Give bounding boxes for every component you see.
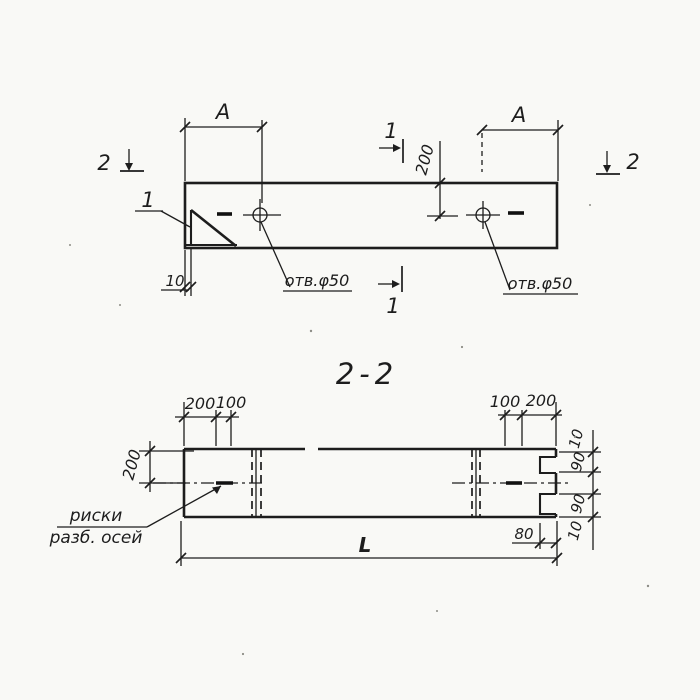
speck [436,610,438,612]
section-1-bottom-label: 1 [386,294,399,318]
dim-tr-100: 100 [490,392,521,411]
dim-a-right: A [477,103,563,181]
dim-height-left: 200 [119,441,194,492]
speck [69,244,71,246]
speck [574,436,576,438]
dim-right-side: 10 90 90 10 [559,427,601,550]
panel-outline [185,183,557,248]
dim-r-10-bottom: 10 [564,519,586,542]
dim-top-right: 100 200 [490,391,562,446]
speck [589,204,591,206]
dim-r-10-top: 10 [565,427,587,450]
groove-top-outline [540,457,556,473]
axes-note-line1: риски [69,506,123,526]
groove-bottom-outline [540,494,556,514]
speck [461,346,463,348]
dim-a-left: A [180,100,267,203]
section-arrow-head [125,163,133,171]
dim-200-label: 200 [412,142,438,176]
dim-tr-200: 200 [526,391,557,410]
section-mark-1-top: 1 [379,119,403,163]
hole-note-right-label: отв.φ50 [508,274,573,293]
dim-top-left: 200 100 [175,393,246,446]
speck [310,330,312,332]
dim-tl-100: 100 [216,393,247,412]
section-2-right-label: 2 [626,150,639,174]
drawing-canvas: 1 отв.φ50 отв.φ50 [0,0,700,700]
detail-callout-label: 1 [141,188,154,212]
section-mark-2-left: 2 [97,149,144,175]
dim-height-label: 200 [119,447,145,481]
section-mark-1-bottom: 1 [378,266,402,318]
dim-a-left-label: A [214,100,230,124]
scan-noise [69,204,649,655]
section-view: 200 100 100 200 200 [49,391,601,566]
hole-note-left: отв.φ50 [261,222,352,291]
section-title: 2-2 [336,357,398,391]
section-arrow-head [393,144,401,152]
axes-note-line2: разб. осей [49,528,143,548]
dim-groove-label: 80 [514,525,533,543]
section-arrow-head [392,280,400,288]
hole-note-left-label: отв.φ50 [285,271,350,290]
dim-10-top-view: 10 [161,248,196,296]
dim-length: L [176,521,562,566]
dim-10-label: 10 [165,272,184,290]
hole-right [466,201,524,229]
dim-length-label: L [359,533,372,557]
speck [119,304,121,306]
groove-top [540,457,556,473]
hole-left [217,199,281,231]
detail-callout: 1 [135,188,190,227]
top-view: 1 отв.φ50 отв.φ50 [97,100,639,318]
section-1-top-label: 1 [384,119,397,143]
dim-200-top-view: 200 [412,141,458,221]
dim-groove-80: 80 [512,523,561,549]
dim-r-90-top: 90 [567,450,589,473]
speck [647,585,649,587]
dim-tl-200: 200 [185,394,216,413]
dim-r-90-bottom: 90 [567,492,589,515]
section-arrow-head [603,165,611,173]
section-mark-2-right: 2 [596,150,640,174]
section-2-left-label: 2 [97,151,110,175]
dim-a-right-label: A [510,103,526,127]
speck [242,653,244,655]
groove-bottom [540,494,556,514]
hole-note-right: отв.φ50 [485,222,578,294]
hole-note-right-leader [485,222,510,290]
